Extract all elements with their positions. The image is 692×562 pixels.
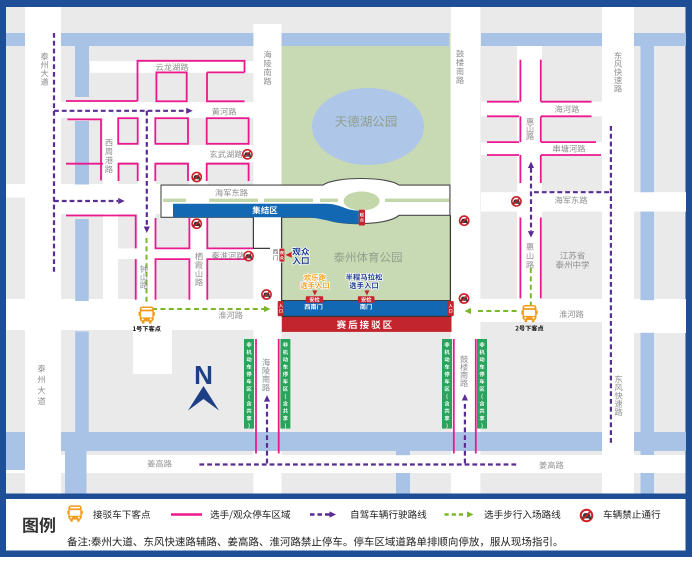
svg-text:N: N [194, 360, 213, 390]
